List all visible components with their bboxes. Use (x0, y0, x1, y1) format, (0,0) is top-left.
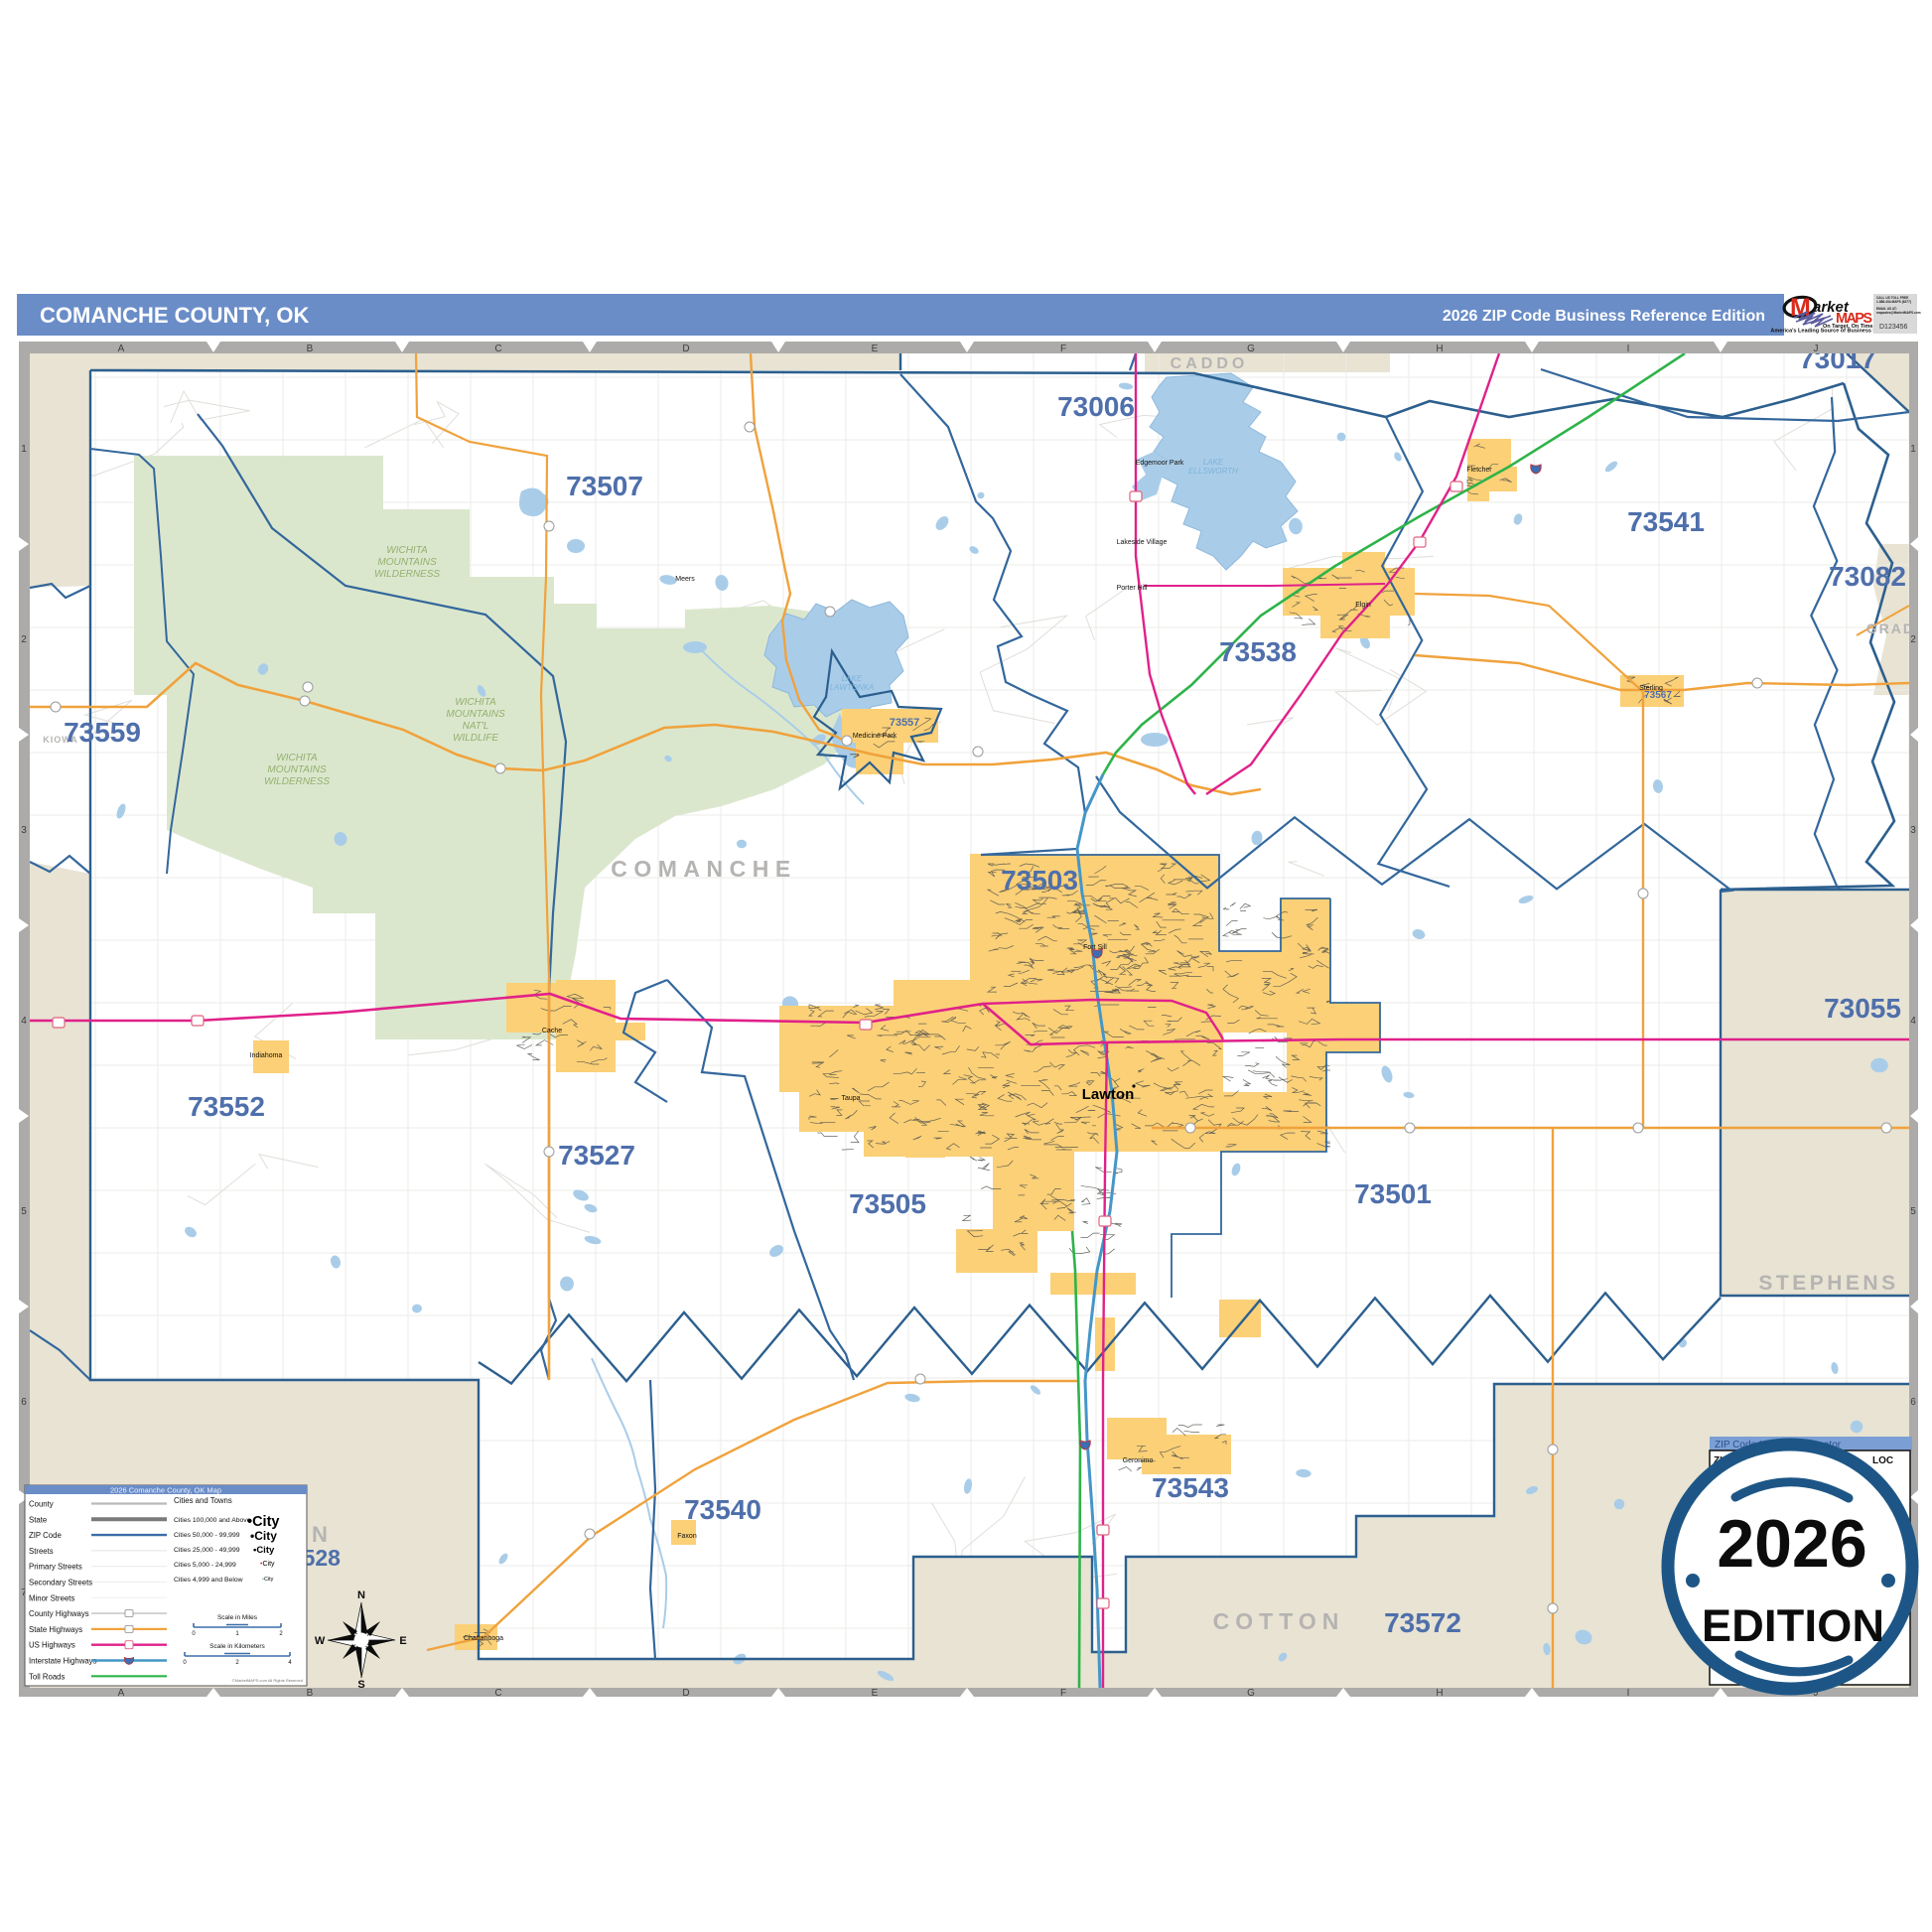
svg-text:Fort Sill: Fort Sill (1083, 944, 1107, 951)
svg-text:73543: 73543 (1152, 1472, 1229, 1503)
svg-text:E: E (872, 344, 879, 354)
svg-text:Cities 25,000 - 49,999: Cities 25,000 - 49,999 (174, 1547, 240, 1554)
svg-text:73501: 73501 (1354, 1178, 1432, 1209)
svg-text:A: A (118, 344, 125, 354)
svg-text:WILDERNESS: WILDERNESS (374, 569, 440, 580)
svg-text:1-888-434-MAPS (6277): 1-888-434-MAPS (6277) (1876, 300, 1911, 304)
svg-text:Geronimo: Geronimo (1123, 1457, 1154, 1464)
svg-text:State Highways: State Highways (29, 1625, 82, 1634)
svg-text:2: 2 (21, 634, 27, 645)
svg-text:3: 3 (21, 825, 27, 836)
svg-text:N: N (357, 1589, 365, 1601)
svg-text:A: A (118, 1688, 125, 1699)
svg-text:B: B (307, 1688, 314, 1699)
svg-text:I: I (1627, 344, 1630, 354)
svg-text:E: E (872, 1688, 879, 1699)
svg-text:CADDO: CADDO (1171, 355, 1249, 372)
svg-text:2: 2 (1910, 634, 1916, 645)
svg-text:mapsales@MarketMAPS.com: mapsales@MarketMAPS.com (1876, 311, 1921, 315)
svg-text:6: 6 (21, 1397, 27, 1408)
svg-text:Streets: Streets (29, 1547, 54, 1556)
svg-text:73572: 73572 (1384, 1607, 1461, 1638)
svg-text:Minor Streets: Minor Streets (29, 1593, 74, 1602)
svg-text:County Highways: County Highways (29, 1609, 89, 1618)
svg-text:Fletcher: Fletcher (1466, 467, 1492, 474)
svg-text:LAKE: LAKE (842, 674, 863, 683)
svg-text:73082: 73082 (1829, 561, 1906, 592)
svg-text:Meers: Meers (675, 576, 695, 583)
svg-text:Cities 5,000 - 24,999: Cities 5,000 - 24,999 (174, 1562, 236, 1569)
svg-text:C: C (494, 344, 501, 354)
svg-text:Cities 50,000 - 99,999: Cities 50,000 - 99,999 (174, 1532, 240, 1539)
svg-text:Elgin: Elgin (1355, 602, 1371, 609)
svg-text:3: 3 (1910, 825, 1916, 836)
svg-text:Cache: Cache (542, 1028, 562, 1035)
svg-text:State: State (29, 1515, 47, 1524)
svg-text:F: F (1060, 344, 1066, 354)
svg-text:4: 4 (21, 1016, 27, 1027)
svg-text:NAT'L: NAT'L (463, 721, 489, 732)
svg-text:73527: 73527 (558, 1140, 635, 1171)
svg-text:©MarketMAPS.com All Rights Re: ©MarketMAPS.com All Rights Reserved (232, 1678, 303, 1683)
svg-text:Taupa: Taupa (841, 1095, 860, 1102)
svg-text:MOUNTAINS: MOUNTAINS (446, 709, 505, 720)
svg-text:Interstate Highways: Interstate Highways (29, 1657, 97, 1666)
svg-text:•City: •City (247, 1514, 279, 1530)
svg-text:MOUNTAINS: MOUNTAINS (377, 557, 437, 568)
svg-text:Primary Streets: Primary Streets (29, 1563, 82, 1572)
svg-text:•City: •City (250, 1529, 277, 1543)
svg-text:G: G (1247, 1688, 1255, 1699)
svg-text:D: D (682, 344, 689, 354)
svg-text:WILDLIFE: WILDLIFE (453, 733, 498, 744)
svg-text:Cities 4,999 and Below: Cities 4,999 and Below (174, 1577, 243, 1584)
svg-text:F: F (1060, 1688, 1066, 1699)
svg-text:6: 6 (1910, 1397, 1916, 1408)
svg-text:C: C (494, 1688, 501, 1699)
svg-text:•City: •City (253, 1545, 275, 1556)
svg-text:Cities 100,000 and Above: Cities 100,000 and Above (174, 1517, 251, 1524)
svg-text:Faxon: Faxon (677, 1533, 697, 1540)
svg-text:MOUNTAINS: MOUNTAINS (267, 764, 327, 775)
svg-text:N: N (312, 1522, 328, 1547)
svg-text:WILDERNESS: WILDERNESS (264, 776, 330, 787)
svg-text:4: 4 (1910, 1016, 1916, 1027)
svg-text:Cities and Towns: Cities and Towns (174, 1496, 232, 1505)
svg-text:•City: •City (262, 1577, 274, 1583)
svg-text:County: County (29, 1500, 54, 1509)
svg-text:2026 Comanche County, OK Map: 2026 Comanche County, OK Map (110, 1486, 221, 1495)
svg-text:2026: 2026 (1717, 1506, 1866, 1582)
svg-text:G: G (1247, 344, 1255, 354)
svg-text:WICHITA: WICHITA (455, 697, 496, 708)
svg-text:STEPHENS: STEPHENS (1758, 1272, 1898, 1295)
svg-text:Edgemoor Park: Edgemoor Park (1136, 460, 1184, 467)
svg-text:ELLSWORTH: ELLSWORTH (1188, 467, 1238, 476)
svg-text:Lawton: Lawton (1082, 1086, 1135, 1103)
svg-text:73541: 73541 (1627, 506, 1705, 537)
svg-text:LOC: LOC (1872, 1455, 1893, 1466)
svg-text:73055: 73055 (1824, 993, 1901, 1024)
svg-text:COMANCHE: COMANCHE (611, 856, 796, 882)
svg-text:1: 1 (1910, 444, 1916, 455)
svg-text:B: B (307, 344, 314, 354)
svg-text:W: W (315, 1635, 326, 1647)
svg-text:E: E (399, 1635, 406, 1647)
svg-text:WICHITA: WICHITA (386, 545, 428, 556)
svg-text:D: D (682, 1688, 689, 1699)
svg-text:73557: 73557 (890, 717, 920, 729)
svg-text:H: H (1436, 344, 1443, 354)
svg-text:73503: 73503 (1001, 865, 1078, 896)
svg-text:2026 ZIP Code Business Referen: 2026 ZIP Code Business Reference Edition (1443, 308, 1765, 325)
svg-text:5: 5 (21, 1206, 27, 1217)
svg-text:Scale in Kilometers: Scale in Kilometers (209, 1643, 265, 1650)
svg-text:73538: 73538 (1219, 636, 1297, 667)
svg-text:5: 5 (1910, 1206, 1916, 1217)
svg-text:Toll Roads: Toll Roads (29, 1672, 66, 1681)
svg-text:73540: 73540 (684, 1494, 761, 1525)
svg-text:Indiahoma: Indiahoma (250, 1052, 283, 1059)
svg-text:J: J (1814, 344, 1819, 354)
svg-text:LAWTONKA: LAWTONKA (830, 683, 875, 692)
svg-text:73006: 73006 (1057, 391, 1135, 422)
svg-text:America's Leading Source of B: America's Leading Source of Business Map… (1770, 329, 1886, 335)
svg-text:I: I (1627, 1688, 1630, 1699)
svg-text:H: H (1436, 1688, 1443, 1699)
svg-text:73507: 73507 (566, 471, 643, 501)
svg-text:S: S (357, 1679, 364, 1691)
svg-text:D123456: D123456 (1879, 324, 1908, 331)
svg-text:WICHITA: WICHITA (276, 753, 318, 763)
svg-text:COTTON: COTTON (1213, 1608, 1345, 1634)
svg-text:•City: •City (260, 1561, 275, 1568)
svg-text:Sterling: Sterling (1639, 685, 1663, 692)
svg-text:73505: 73505 (849, 1188, 926, 1219)
svg-text:Porter Hill: Porter Hill (1117, 585, 1148, 592)
svg-text:LAKE: LAKE (1203, 458, 1224, 467)
svg-text:1: 1 (21, 444, 27, 455)
svg-text:Chattanooga: Chattanooga (464, 1635, 503, 1642)
svg-text:73552: 73552 (188, 1091, 265, 1122)
svg-text:73559: 73559 (64, 717, 141, 748)
svg-text:US Highways: US Highways (29, 1641, 75, 1650)
svg-text:Medicine Park: Medicine Park (853, 733, 897, 740)
svg-text:Scale in Miles: Scale in Miles (217, 1614, 258, 1621)
svg-text:Lakeside Village: Lakeside Village (1117, 539, 1168, 546)
svg-text:EDITION: EDITION (1702, 1600, 1884, 1651)
svg-text:COMANCHE COUNTY, OK: COMANCHE COUNTY, OK (40, 303, 309, 328)
svg-text:ZIP Code: ZIP Code (29, 1531, 62, 1540)
svg-text:Secondary Streets: Secondary Streets (29, 1579, 92, 1587)
